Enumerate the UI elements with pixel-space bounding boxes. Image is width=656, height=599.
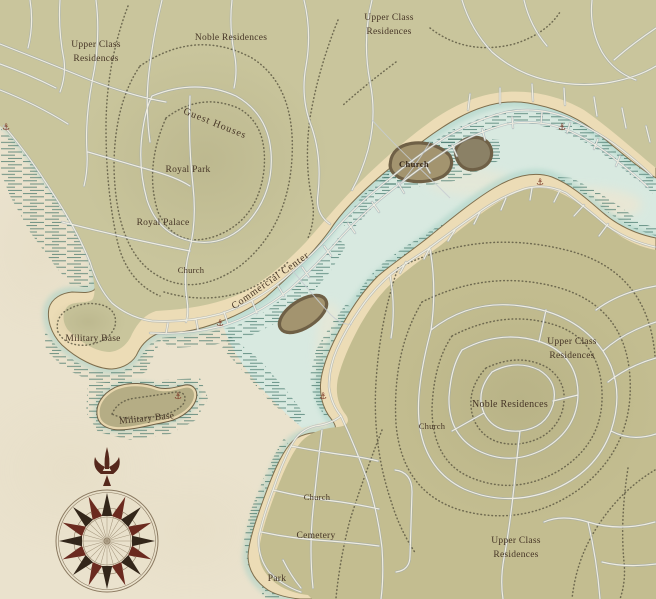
label-royal-park: Royal Park <box>166 165 211 175</box>
label-upper-class-residences-north: Residences <box>366 27 411 37</box>
label-upper-class-residences-south: Upper Class <box>491 536 541 546</box>
label-church-south: Church <box>304 492 331 502</box>
label-upper-class-residences-nw: Upper Class <box>71 40 121 50</box>
anchor-icon: ⚓ <box>536 178 544 188</box>
anchor-icon: ⚓ <box>174 392 182 402</box>
label-church-island: Church <box>399 159 429 169</box>
city-map-stage: ⚓ ⚓ ⚓ ⚓ ⚓ ⚓ Upper Class Residences Noble… <box>0 0 656 599</box>
anchor-icon: ⚓ <box>319 392 327 402</box>
label-church-east: Church <box>419 421 446 431</box>
label-park: Park <box>268 574 286 584</box>
label-upper-class-residences-nw: Residences <box>73 54 118 64</box>
anchor-icon: ⚓ <box>558 123 566 133</box>
anchor-icon: ⚓ <box>2 123 10 133</box>
label-church-nw: Church <box>178 265 205 275</box>
label-upper-class-residences-south: Residences <box>493 550 538 560</box>
label-upper-class-residences-east: Residences <box>549 351 594 361</box>
label-noble-residences-east: Noble Residences <box>472 399 548 410</box>
label-upper-class-residences-north: Upper Class <box>364 13 414 23</box>
round-island <box>457 139 490 168</box>
label-noble-residences-north: Noble Residences <box>195 33 267 43</box>
label-cemetery: Cemetery <box>297 531 336 541</box>
label-royal-palace: Royal Palace <box>137 218 190 228</box>
label-upper-class-residences-east: Upper Class <box>547 337 597 347</box>
label-military-base-west: Military Base <box>65 334 120 344</box>
anchor-icon: ⚓ <box>216 319 224 329</box>
city-map: ⚓ ⚓ ⚓ ⚓ ⚓ ⚓ Upper Class Residences Noble… <box>0 0 656 599</box>
